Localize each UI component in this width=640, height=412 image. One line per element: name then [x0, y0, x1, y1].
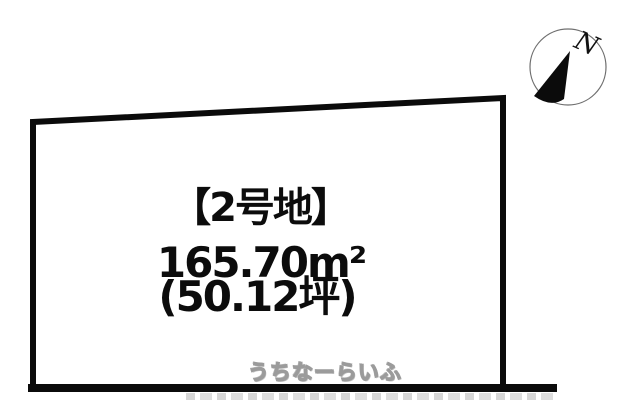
cropped-caption-strip: [186, 393, 558, 400]
compass-north-label: N: [569, 25, 604, 63]
lot-number-label: 【2号地】: [171, 188, 349, 228]
area-tsubo-label: (50.12坪): [158, 276, 355, 318]
compass-needle-icon: [534, 51, 570, 103]
land-plot-diagram: N 【2号地】 165.70m² (50.12坪) うちなーらいふ: [0, 0, 640, 412]
compass: N: [530, 25, 606, 105]
watermark-uchina-life: うちなーらいふ: [248, 363, 402, 384]
